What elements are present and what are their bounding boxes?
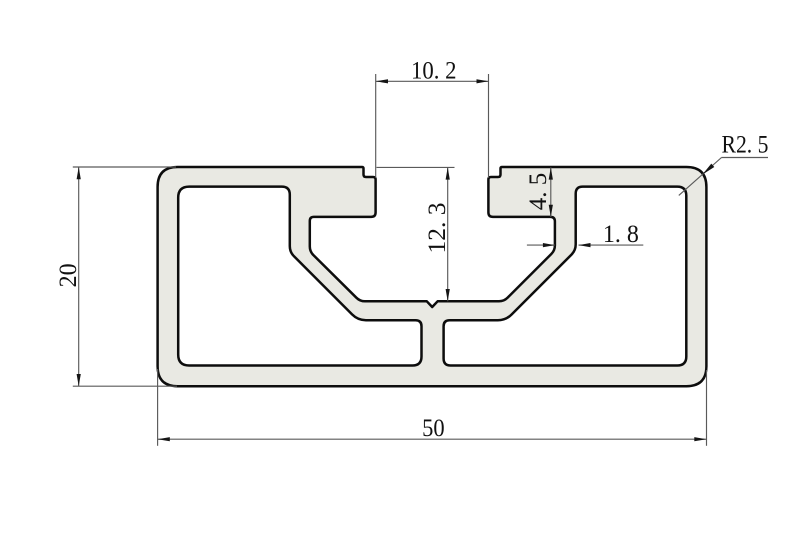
svg-text:R2. 5: R2. 5 (722, 132, 769, 159)
svg-text:50: 50 (422, 415, 445, 442)
svg-text:12. 3: 12. 3 (424, 203, 451, 254)
svg-text:10. 2: 10. 2 (411, 57, 457, 84)
svg-text:20: 20 (55, 263, 82, 287)
svg-text:4. 5: 4. 5 (525, 173, 552, 211)
svg-text:1. 8: 1. 8 (603, 221, 639, 248)
